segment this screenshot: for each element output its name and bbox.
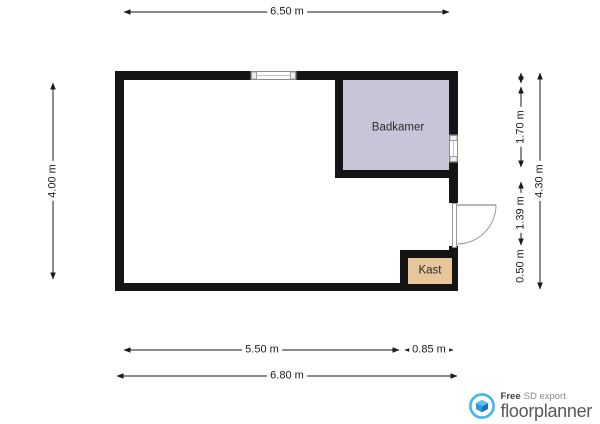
dim-right-total-label: 4.30 m [535,161,546,201]
floorplanner-wordmark: floorplanner [501,402,592,420]
export-caption-type: SD export [524,391,566,402]
window-right [450,135,458,162]
floorplanner-logo-icon [468,392,496,420]
floorplan-page: 6.50 m 4.00 m 1.70 m 1.39 m 0.50 m 4.30 … [0,0,600,424]
dim-top-label: 6.50 m [267,7,307,18]
dim-bottom-seg2-label: 0.85 m [409,345,449,356]
door [453,204,497,248]
dim-right-seg1-label: 1.70 m [516,107,527,147]
room-label-badkamer: Badkamer [372,122,424,134]
window-top [251,72,296,80]
dim-bottom-total-label: 6.80 m [267,371,307,382]
floorplanner-branding: FreeSD export floorplanner [468,392,592,421]
export-caption-free: Free [501,391,521,402]
dim-right-seg2-label: 1.39 m [516,193,527,233]
room-label-kast: Kast [418,265,441,277]
export-caption: FreeSD export [501,392,592,402]
floor-plan-drawing [0,0,600,424]
dim-bottom-seg1-label: 5.50 m [242,345,282,356]
dim-left-label: 4.00 m [48,161,59,201]
dim-right-seg3-label: 0.50 m [516,246,527,286]
